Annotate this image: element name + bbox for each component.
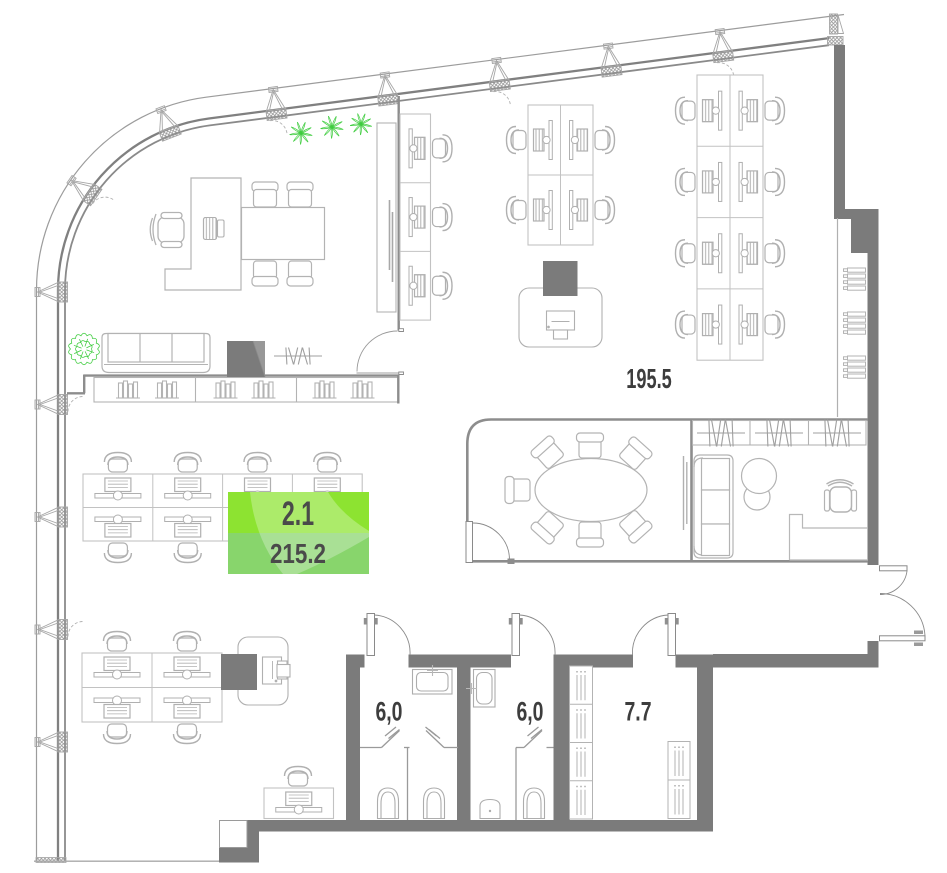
svg-text:195.5: 195.5 <box>626 364 672 395</box>
svg-text:6,0: 6,0 <box>375 696 402 726</box>
svg-text:215.2: 215.2 <box>270 539 326 570</box>
svg-text:7.7: 7.7 <box>624 696 651 726</box>
svg-text:2.1: 2.1 <box>282 496 314 533</box>
svg-text:6,0: 6,0 <box>516 696 543 726</box>
